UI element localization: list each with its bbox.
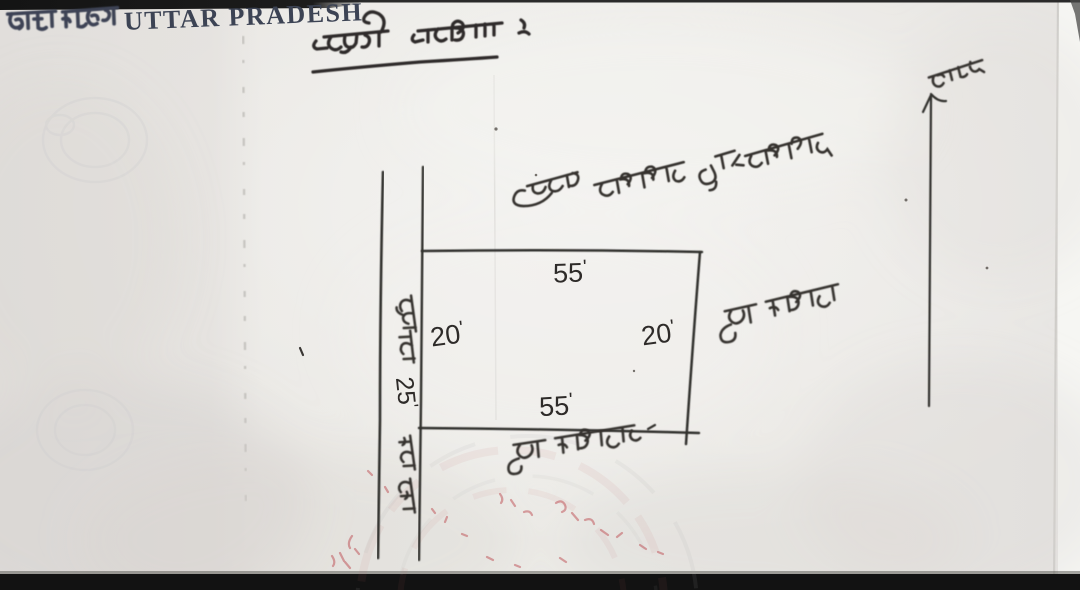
svg-text:25': 25' [390,375,422,409]
svg-text:55': 55' [538,389,573,422]
svg-text:20': 20' [428,317,466,352]
svg-text:20': 20' [639,316,677,351]
svg-text:UTTAR PRADESH: UTTAR PRADESH [123,0,363,36]
svg-text:55': 55' [553,256,588,288]
